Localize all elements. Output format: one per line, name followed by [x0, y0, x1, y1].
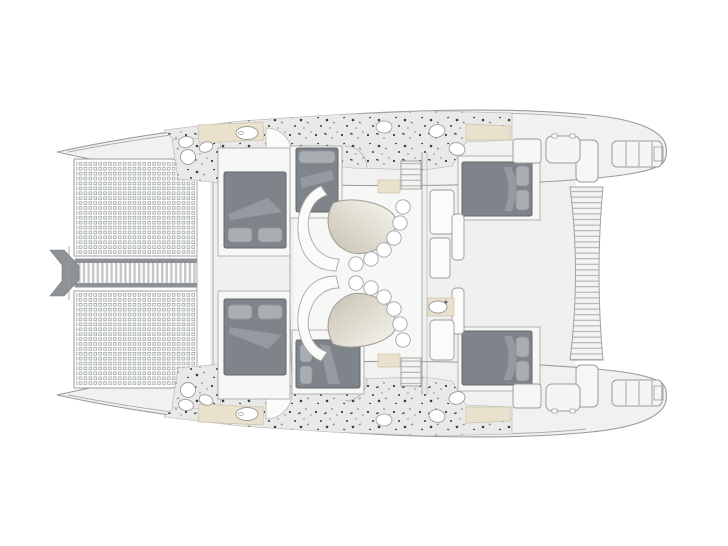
galley-unit — [430, 320, 454, 360]
galley-counter — [452, 214, 464, 260]
cabin-aft-starboard — [458, 327, 540, 391]
cabin-forward-starboard — [218, 291, 290, 399]
floorplan-canvas — [0, 0, 728, 546]
pillow — [300, 366, 312, 384]
stairs-port — [401, 161, 421, 189]
pillow — [299, 151, 335, 163]
galley-unit — [430, 190, 454, 234]
catamaran-floorplan — [0, 0, 728, 546]
galley-sink — [429, 301, 447, 313]
cabin-forward-port — [218, 148, 290, 256]
galley-unit — [430, 238, 450, 278]
sink-tap — [445, 301, 448, 304]
bow-walkway — [75, 259, 197, 288]
cabin-aft-port — [458, 156, 540, 220]
stairs-starboard — [401, 358, 421, 386]
